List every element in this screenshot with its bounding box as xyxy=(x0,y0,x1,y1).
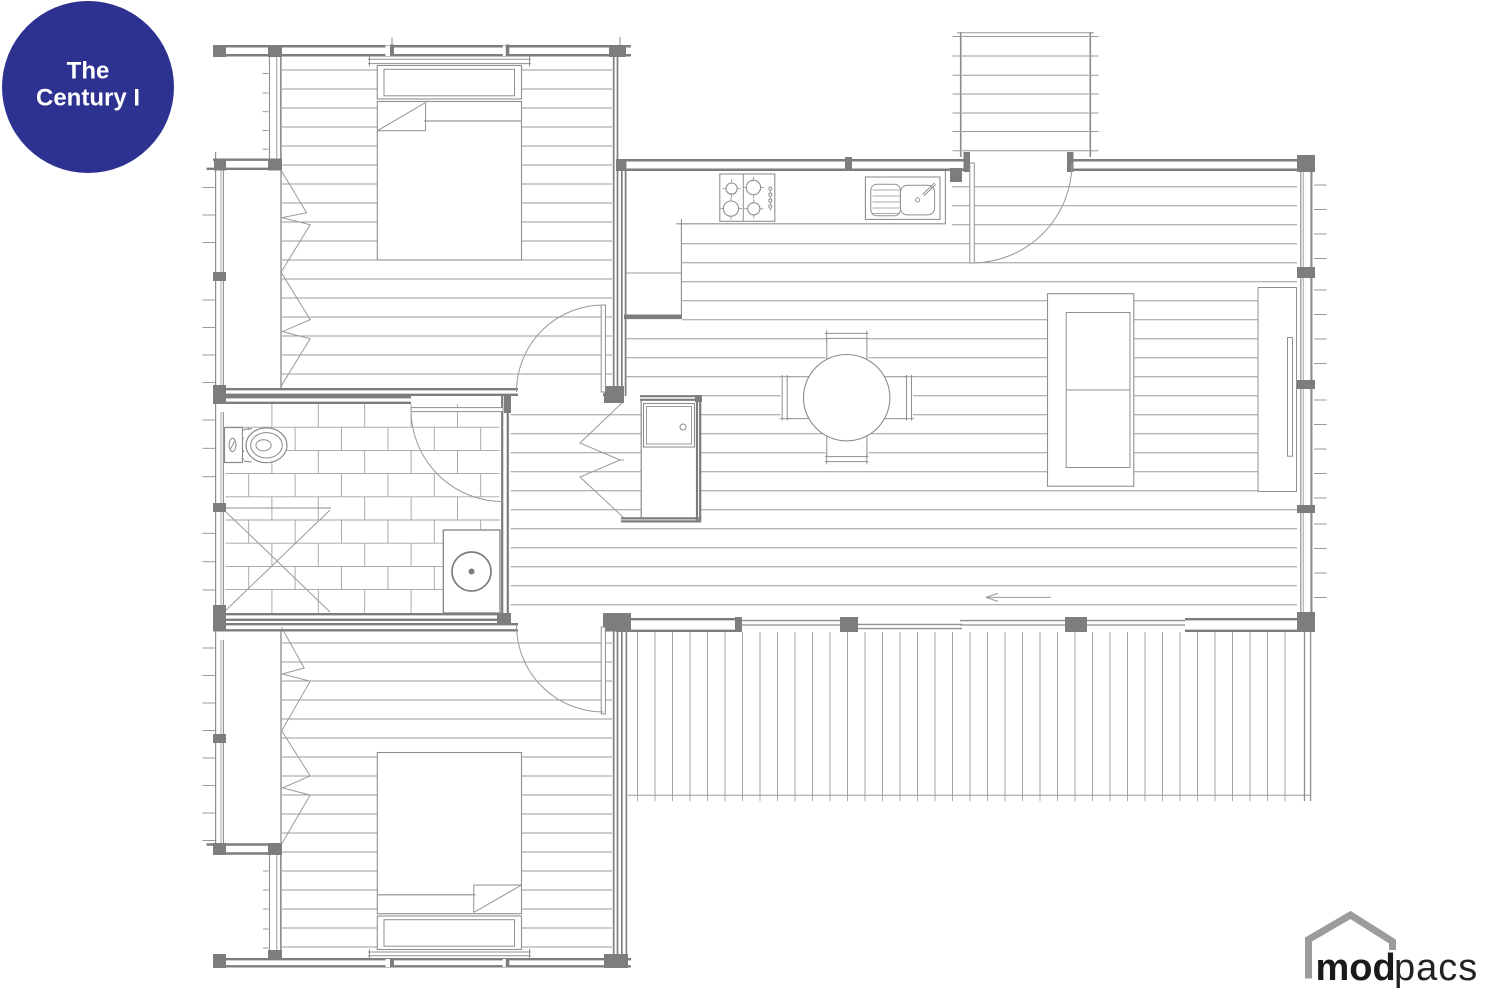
svg-text:Century I: Century I xyxy=(36,85,140,112)
svg-text:The: The xyxy=(67,58,110,85)
svg-text:pacs: pacs xyxy=(1394,947,1478,989)
svg-text:mod: mod xyxy=(1316,947,1396,989)
